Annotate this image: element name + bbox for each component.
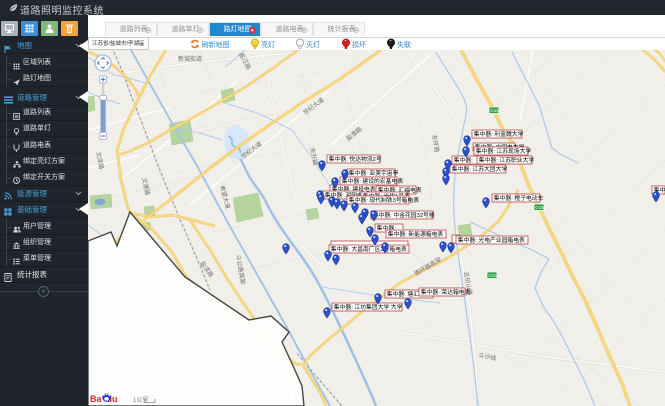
svg-text:集中器: 江苏大团大学: 集中器: 江苏大团大学	[452, 165, 508, 173]
svg-text:集中器: 现代制铁3号箱电表: 集中器: 现代制铁3号箱电表	[349, 196, 419, 204]
svg-text:集中器: 建设的宏基电表: 集中器: 建设的宏基电表	[342, 177, 403, 185]
svg-text:集中器: 大昌南厂区2号箱电表: 集中器: 大昌南厂区2号箱电表	[331, 245, 407, 253]
svg-text:集中器: 光电产业园箱电表: 集中器: 光电产业园箱电表	[458, 236, 525, 244]
svg-text:集中器: 新能源箱电表: 集中器: 新能源箱电表	[388, 230, 444, 238]
svg-text:G15: G15	[535, 205, 544, 210]
svg-text:G15: G15	[490, 108, 499, 113]
svg-text:集中器: 悦达物流2号: 集中器: 悦达物流2号	[329, 155, 382, 163]
svg-text:集中器: 橙子电动车: 集中器: 橙子电动车	[494, 194, 544, 202]
svg-text:集中器: 亚美宇宙亭: 集中器: 亚美宇宙亭	[349, 169, 399, 177]
svg-text:新城街道: 新城街道	[178, 55, 202, 63]
svg-text:集中器: 江苏现场大学: 集中器: 江苏现场大学	[476, 147, 532, 155]
svg-text:集中器:: 集中器:	[454, 156, 473, 164]
svg-text:集中器: 江坊集团大学 大学: 集中器: 江坊集团大学 大学	[334, 303, 403, 311]
svg-text:集中器: 中金花园32号楼: 集中器: 中金花园32号楼	[373, 211, 435, 219]
svg-text:集中器: 江苏职业大学: 集中器: 江苏职业大学	[479, 156, 535, 164]
svg-text:集中器: 利富魏大学: 集中器: 利富魏大学	[474, 130, 524, 138]
svg-text:G15: G15	[488, 273, 497, 278]
svg-text:集中器: 荣达箱电表: 集中器: 荣达箱电表	[421, 288, 471, 296]
svg-text:1公里: 1公里	[133, 397, 148, 404]
